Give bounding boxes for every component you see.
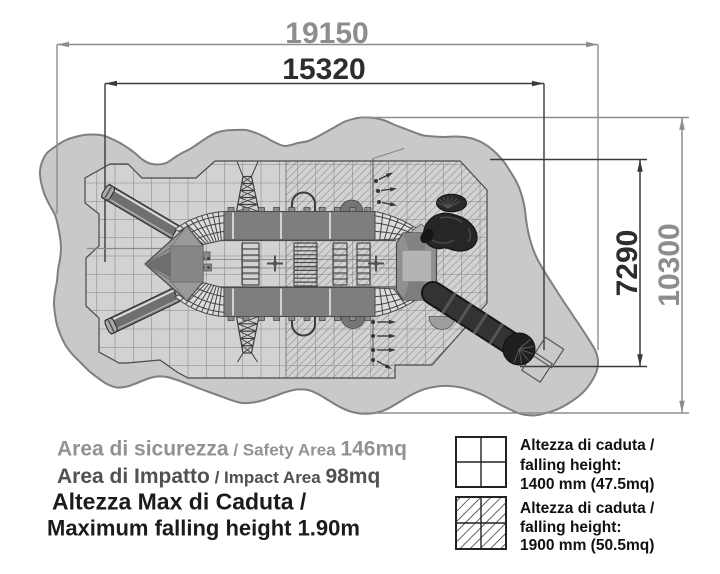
svg-text:10300: 10300 — [653, 223, 686, 306]
svg-text:1900 mm (50.5mq): 1900 mm (50.5mq) — [520, 537, 654, 554]
svg-text:falling height:: falling height: — [520, 457, 622, 474]
svg-text:falling height:: falling height: — [520, 519, 622, 536]
svg-text:7290: 7290 — [611, 230, 644, 297]
svg-text:Altezza di caduta /: Altezza di caduta / — [520, 437, 655, 454]
svg-text:Altezza Max di Caduta /: Altezza Max di Caduta / — [52, 489, 307, 515]
svg-text:Maximum falling height 1.90m: Maximum falling height 1.90m — [47, 516, 360, 541]
svg-text:Area di Impatto / Impact Area: Area di Impatto / Impact Area 98mq — [57, 465, 380, 488]
svg-text:19150: 19150 — [285, 17, 368, 50]
svg-text:Altezza di caduta /: Altezza di caduta / — [520, 500, 655, 517]
svg-text:1400 mm (47.5mq): 1400 mm (47.5mq) — [520, 476, 654, 493]
svg-text:Area di sicurezza / Safety Are: Area di sicurezza / Safety Area 146mq — [57, 438, 407, 461]
svg-text:15320: 15320 — [282, 53, 365, 86]
